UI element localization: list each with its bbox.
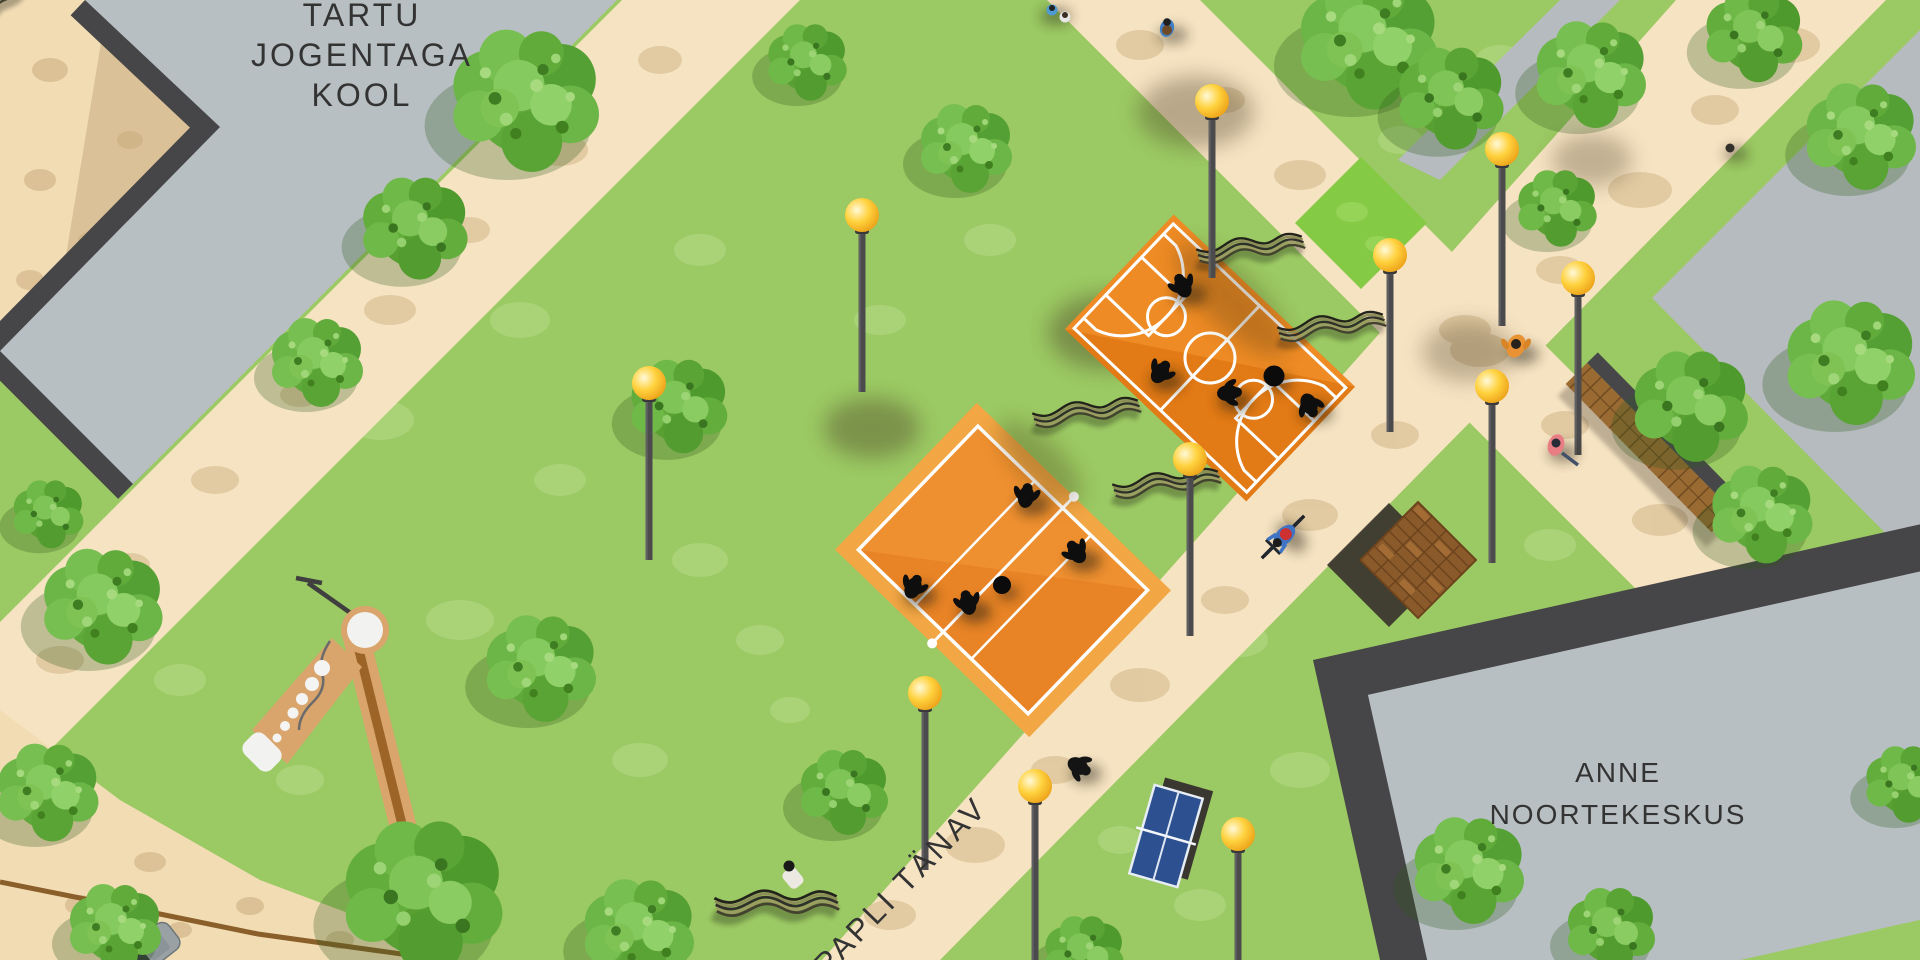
volleyball: [993, 576, 1011, 594]
school-label-line2: JOGENTAGA: [251, 37, 473, 73]
school-label-line1: TARTU: [303, 0, 422, 33]
youth-center-label-line1: ANNE: [1575, 757, 1661, 788]
school-label-line3: KOOL: [312, 77, 413, 113]
park-map: TARTU JOGENTAGA KOOL ANNE NOORTEKESKUS P…: [0, 0, 1920, 960]
youth-center-label-line2: NOORTEKESKUS: [1490, 799, 1747, 830]
basketball: [1264, 366, 1285, 387]
